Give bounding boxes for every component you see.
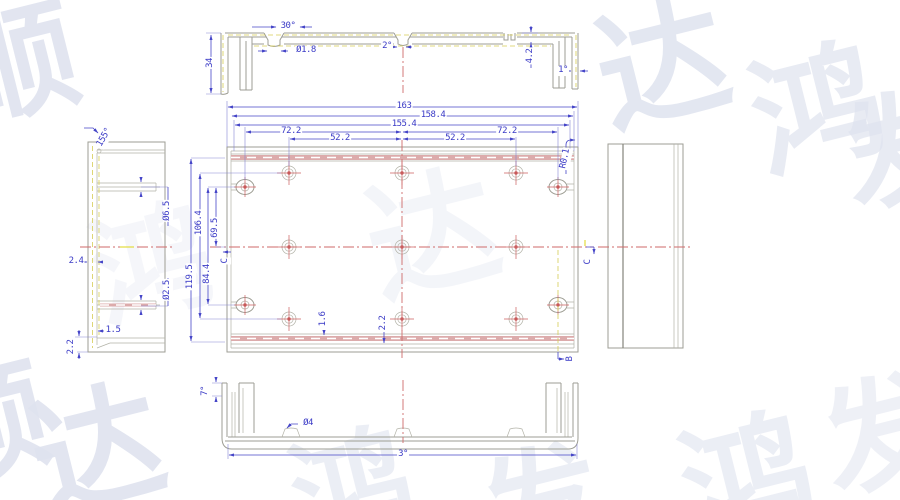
drawing-canvas: 顺达鸿发顺达鸿发鸿发达鸿 [0, 0, 900, 500]
front-view [191, 101, 594, 359]
top-section-view [206, 26, 588, 94]
right-side-view [585, 144, 692, 348]
left-section-view [75, 128, 172, 359]
hole-layer [234, 161, 569, 331]
bottom-section-view [212, 377, 578, 459]
corner-screw-hole [234, 295, 256, 315]
drawing-geometry [0, 0, 900, 500]
boss-screw-hole [504, 307, 528, 331]
